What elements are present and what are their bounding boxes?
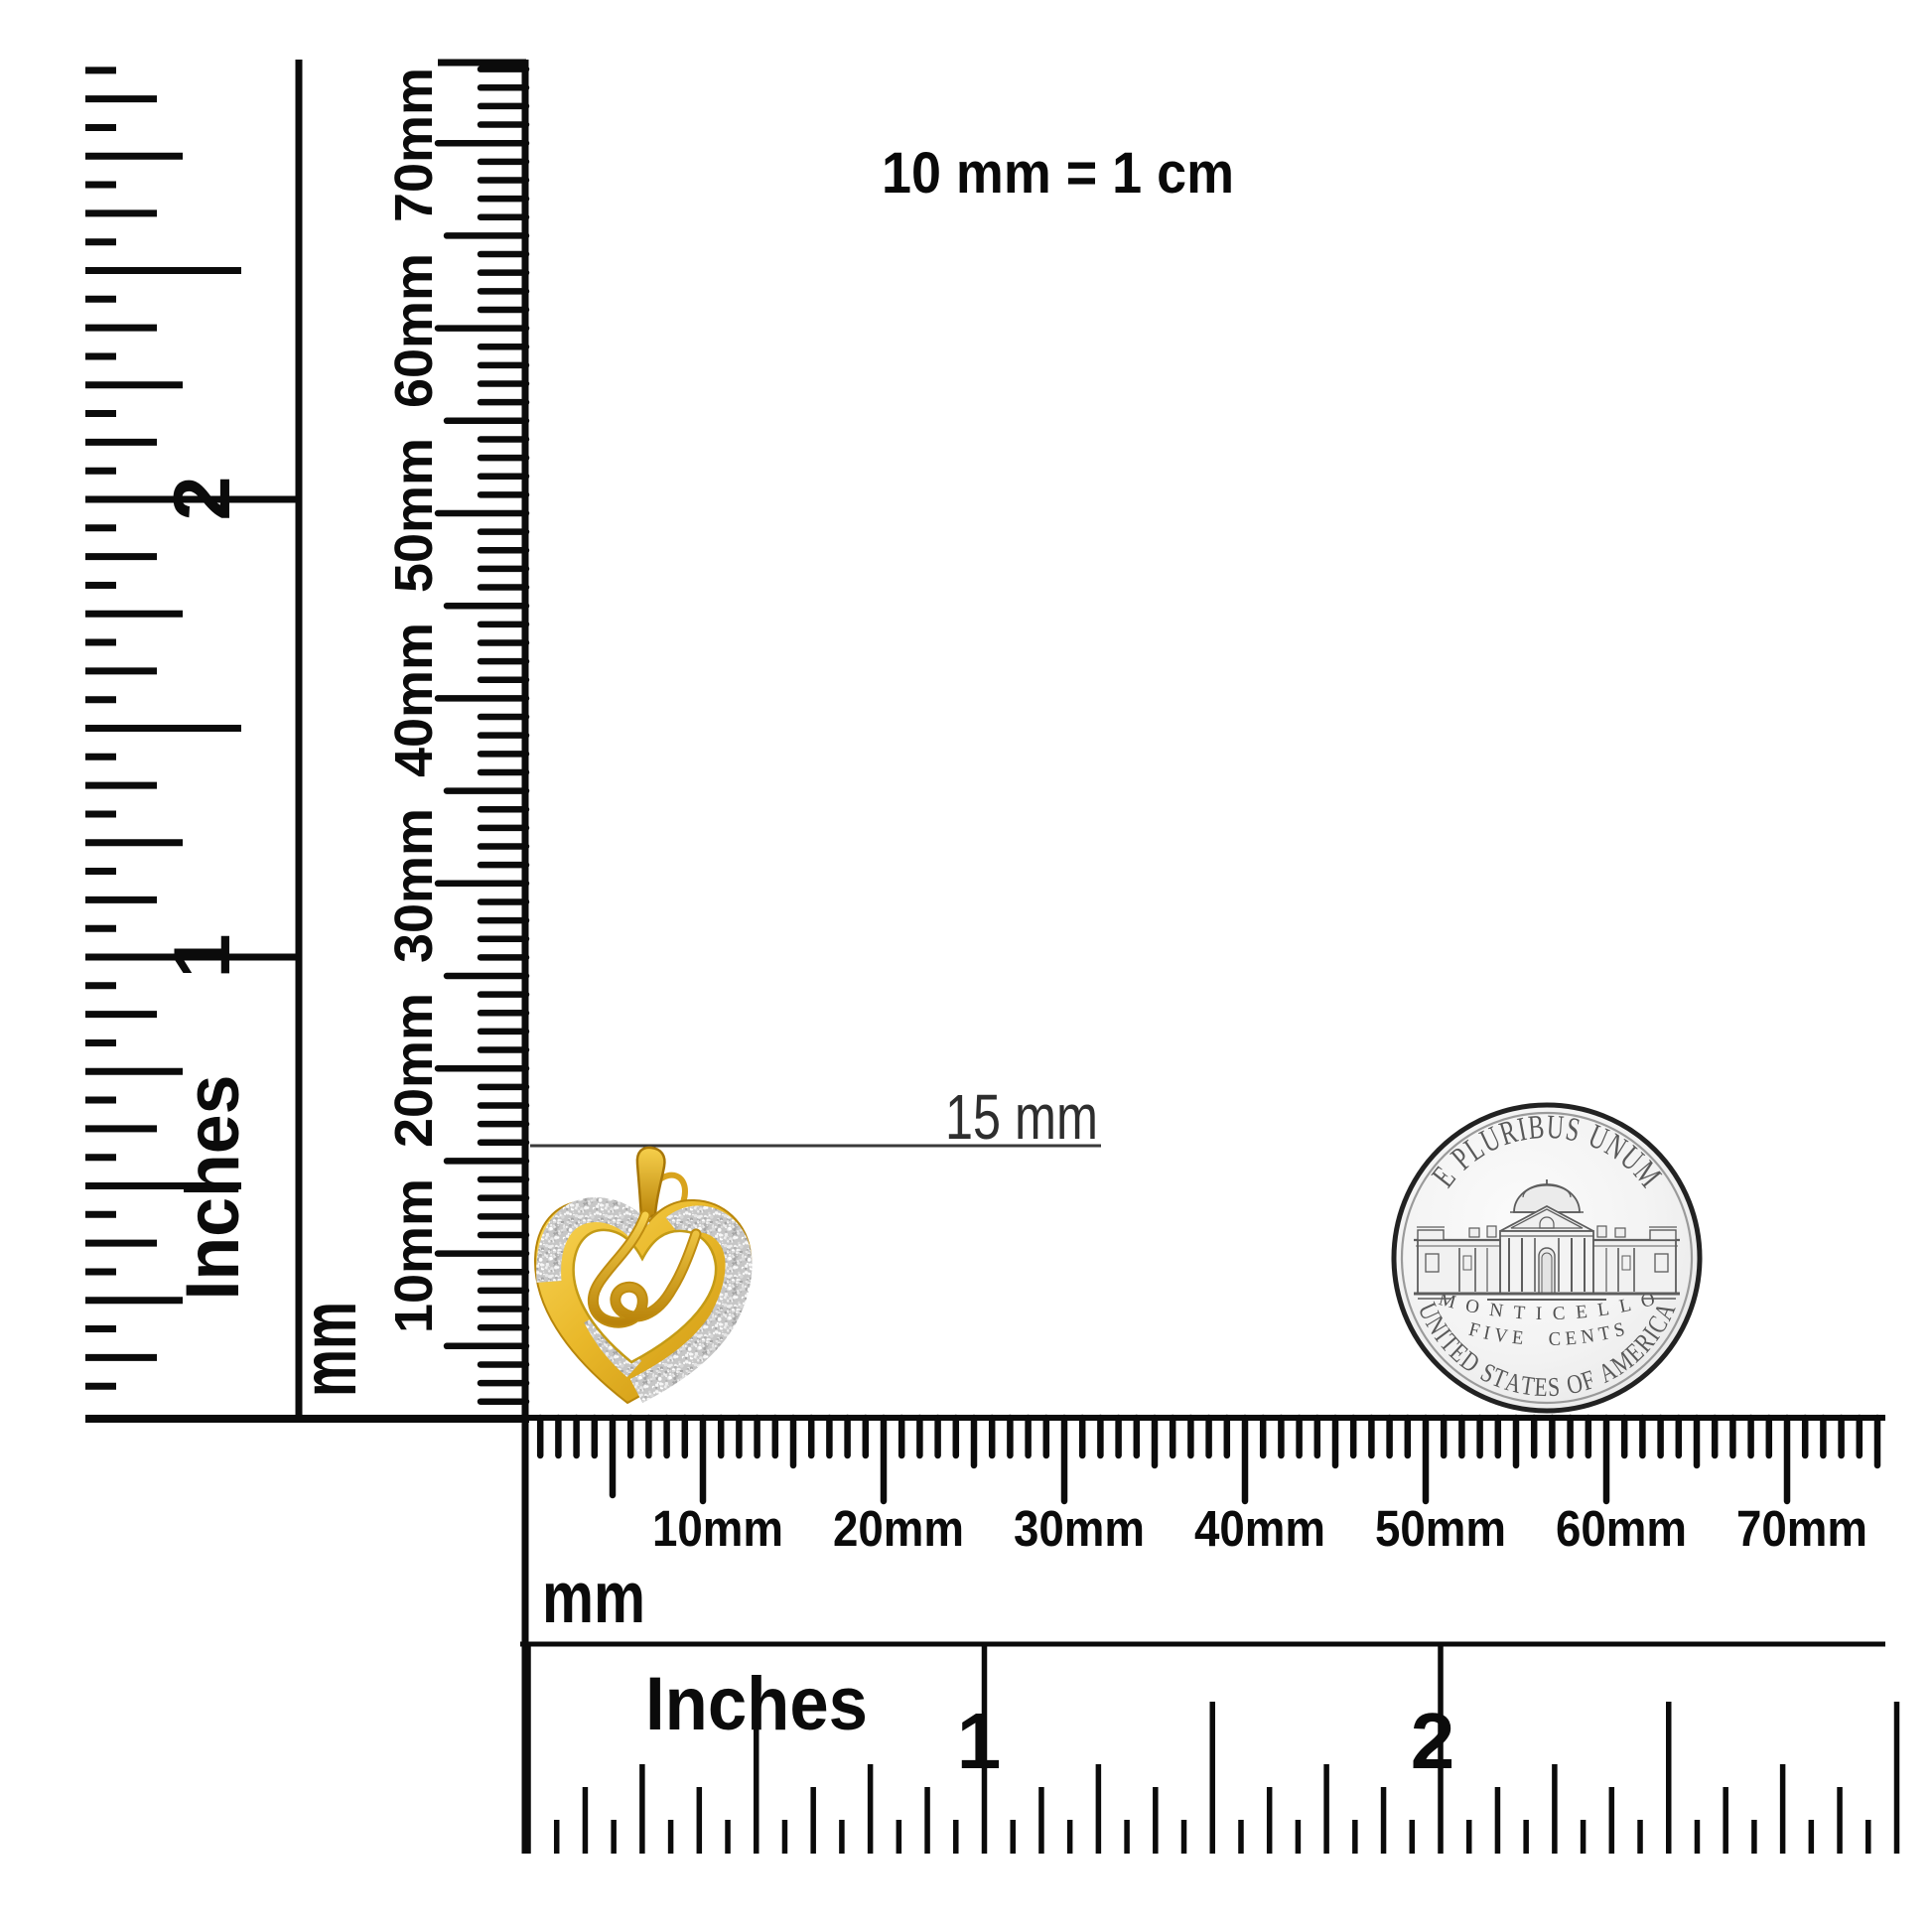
svg-text:I: I (1536, 1304, 1543, 1324)
svg-text:Inches: Inches (645, 1662, 868, 1746)
svg-text:E: E (1534, 1372, 1549, 1402)
svg-text:E: E (1575, 1302, 1587, 1323)
svg-text:50mm: 50mm (384, 438, 444, 593)
svg-text:mm: mm (285, 1302, 372, 1397)
svg-text:10 mm = 1 cm: 10 mm = 1 cm (882, 141, 1234, 206)
svg-text:Inches: Inches (171, 1075, 255, 1301)
svg-text:60mm: 60mm (1556, 1500, 1687, 1557)
svg-text:50mm: 50mm (1375, 1500, 1506, 1557)
svg-text:T: T (1513, 1303, 1526, 1324)
svg-text:15 mm: 15 mm (945, 1081, 1098, 1153)
svg-text:mm: mm (542, 1558, 645, 1638)
svg-text:10mm: 10mm (652, 1500, 783, 1557)
svg-text:S: S (1547, 1372, 1561, 1402)
svg-text:1: 1 (158, 933, 247, 978)
svg-text:C: C (1548, 1328, 1561, 1350)
svg-text:20mm: 20mm (833, 1500, 964, 1557)
svg-text:E: E (1565, 1327, 1578, 1349)
svg-text:1: 1 (957, 1697, 1002, 1785)
svg-text:70mm: 70mm (384, 68, 444, 222)
svg-text:30mm: 30mm (1014, 1500, 1145, 1557)
svg-text:10mm: 10mm (384, 1178, 444, 1333)
svg-text:2: 2 (158, 476, 247, 520)
svg-text:40mm: 40mm (384, 622, 444, 777)
svg-text:30mm: 30mm (384, 808, 444, 963)
svg-text:70mm: 70mm (1736, 1500, 1867, 1557)
svg-text:C: C (1553, 1304, 1566, 1324)
svg-text:20mm: 20mm (384, 993, 444, 1148)
svg-text:E: E (1511, 1327, 1524, 1350)
svg-text:60mm: 60mm (384, 253, 444, 408)
svg-text:2: 2 (1411, 1697, 1455, 1785)
svg-text:B: B (1527, 1109, 1546, 1147)
svg-text:U: U (1546, 1109, 1566, 1147)
svg-text:40mm: 40mm (1194, 1500, 1325, 1557)
